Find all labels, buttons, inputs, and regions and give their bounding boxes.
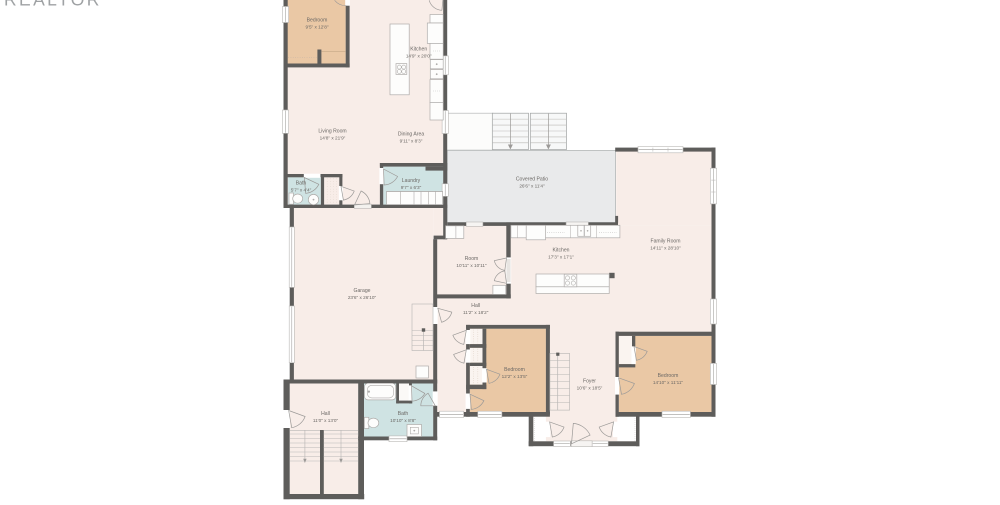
svg-text:Bath: Bath <box>398 411 409 417</box>
svg-text:14'8" x 21'9": 14'8" x 21'9" <box>320 136 346 141</box>
svg-text:9'11" x 8'3": 9'11" x 8'3" <box>400 139 423 144</box>
svg-text:Living Room: Living Room <box>318 129 346 135</box>
svg-text:12'2" x 13'5": 12'2" x 13'5" <box>502 374 528 379</box>
svg-text:10'6" x 18'5": 10'6" x 18'5" <box>577 386 603 391</box>
svg-text:Bath: Bath <box>296 181 307 187</box>
svg-text:Laundry: Laundry <box>402 178 421 184</box>
svg-text:11'0" x 13'0": 11'0" x 13'0" <box>313 418 339 423</box>
svg-text:11'2" x 18'2": 11'2" x 18'2" <box>463 310 489 315</box>
svg-text:REALTOR: REALTOR <box>4 0 102 9</box>
svg-text:Dining Area: Dining Area <box>398 132 425 138</box>
svg-text:Room: Room <box>465 256 479 262</box>
svg-text:Foyer: Foyer <box>583 379 596 385</box>
svg-text:Covered Patio: Covered Patio <box>516 177 548 183</box>
svg-text:9'5" x 12'8": 9'5" x 12'8" <box>305 25 328 30</box>
svg-text:10'11" x 10'11": 10'11" x 10'11" <box>456 263 487 268</box>
svg-text:Bedroom: Bedroom <box>504 367 525 373</box>
svg-text:26'6" x 11'4": 26'6" x 11'4" <box>519 184 545 189</box>
svg-text:Kitchen: Kitchen <box>553 248 570 254</box>
svg-text:Family Room: Family Room <box>650 239 680 245</box>
svg-text:10'10" x 8'8": 10'10" x 8'8" <box>390 418 416 423</box>
svg-text:14'10" x 11'11": 14'10" x 11'11" <box>653 380 684 385</box>
svg-text:5'7" x 4'4": 5'7" x 4'4" <box>291 188 312 193</box>
svg-text:14'9" x 20'0": 14'9" x 20'0" <box>406 54 432 59</box>
svg-text:Bedroom: Bedroom <box>307 18 328 24</box>
svg-text:Hall: Hall <box>471 303 480 309</box>
svg-text:Bedroom: Bedroom <box>658 373 679 379</box>
svg-text:17'3" x 17'1": 17'3" x 17'1" <box>548 255 574 260</box>
svg-text:Kitchen: Kitchen <box>410 47 427 53</box>
svg-text:14'11" x 28'10": 14'11" x 28'10" <box>650 246 681 251</box>
svg-text:23'6" x 26'10": 23'6" x 26'10" <box>348 295 377 300</box>
svg-text:Hall: Hall <box>321 411 330 417</box>
svg-text:9'7" x 6'3": 9'7" x 6'3" <box>401 185 422 190</box>
svg-text:Garage: Garage <box>354 288 371 294</box>
